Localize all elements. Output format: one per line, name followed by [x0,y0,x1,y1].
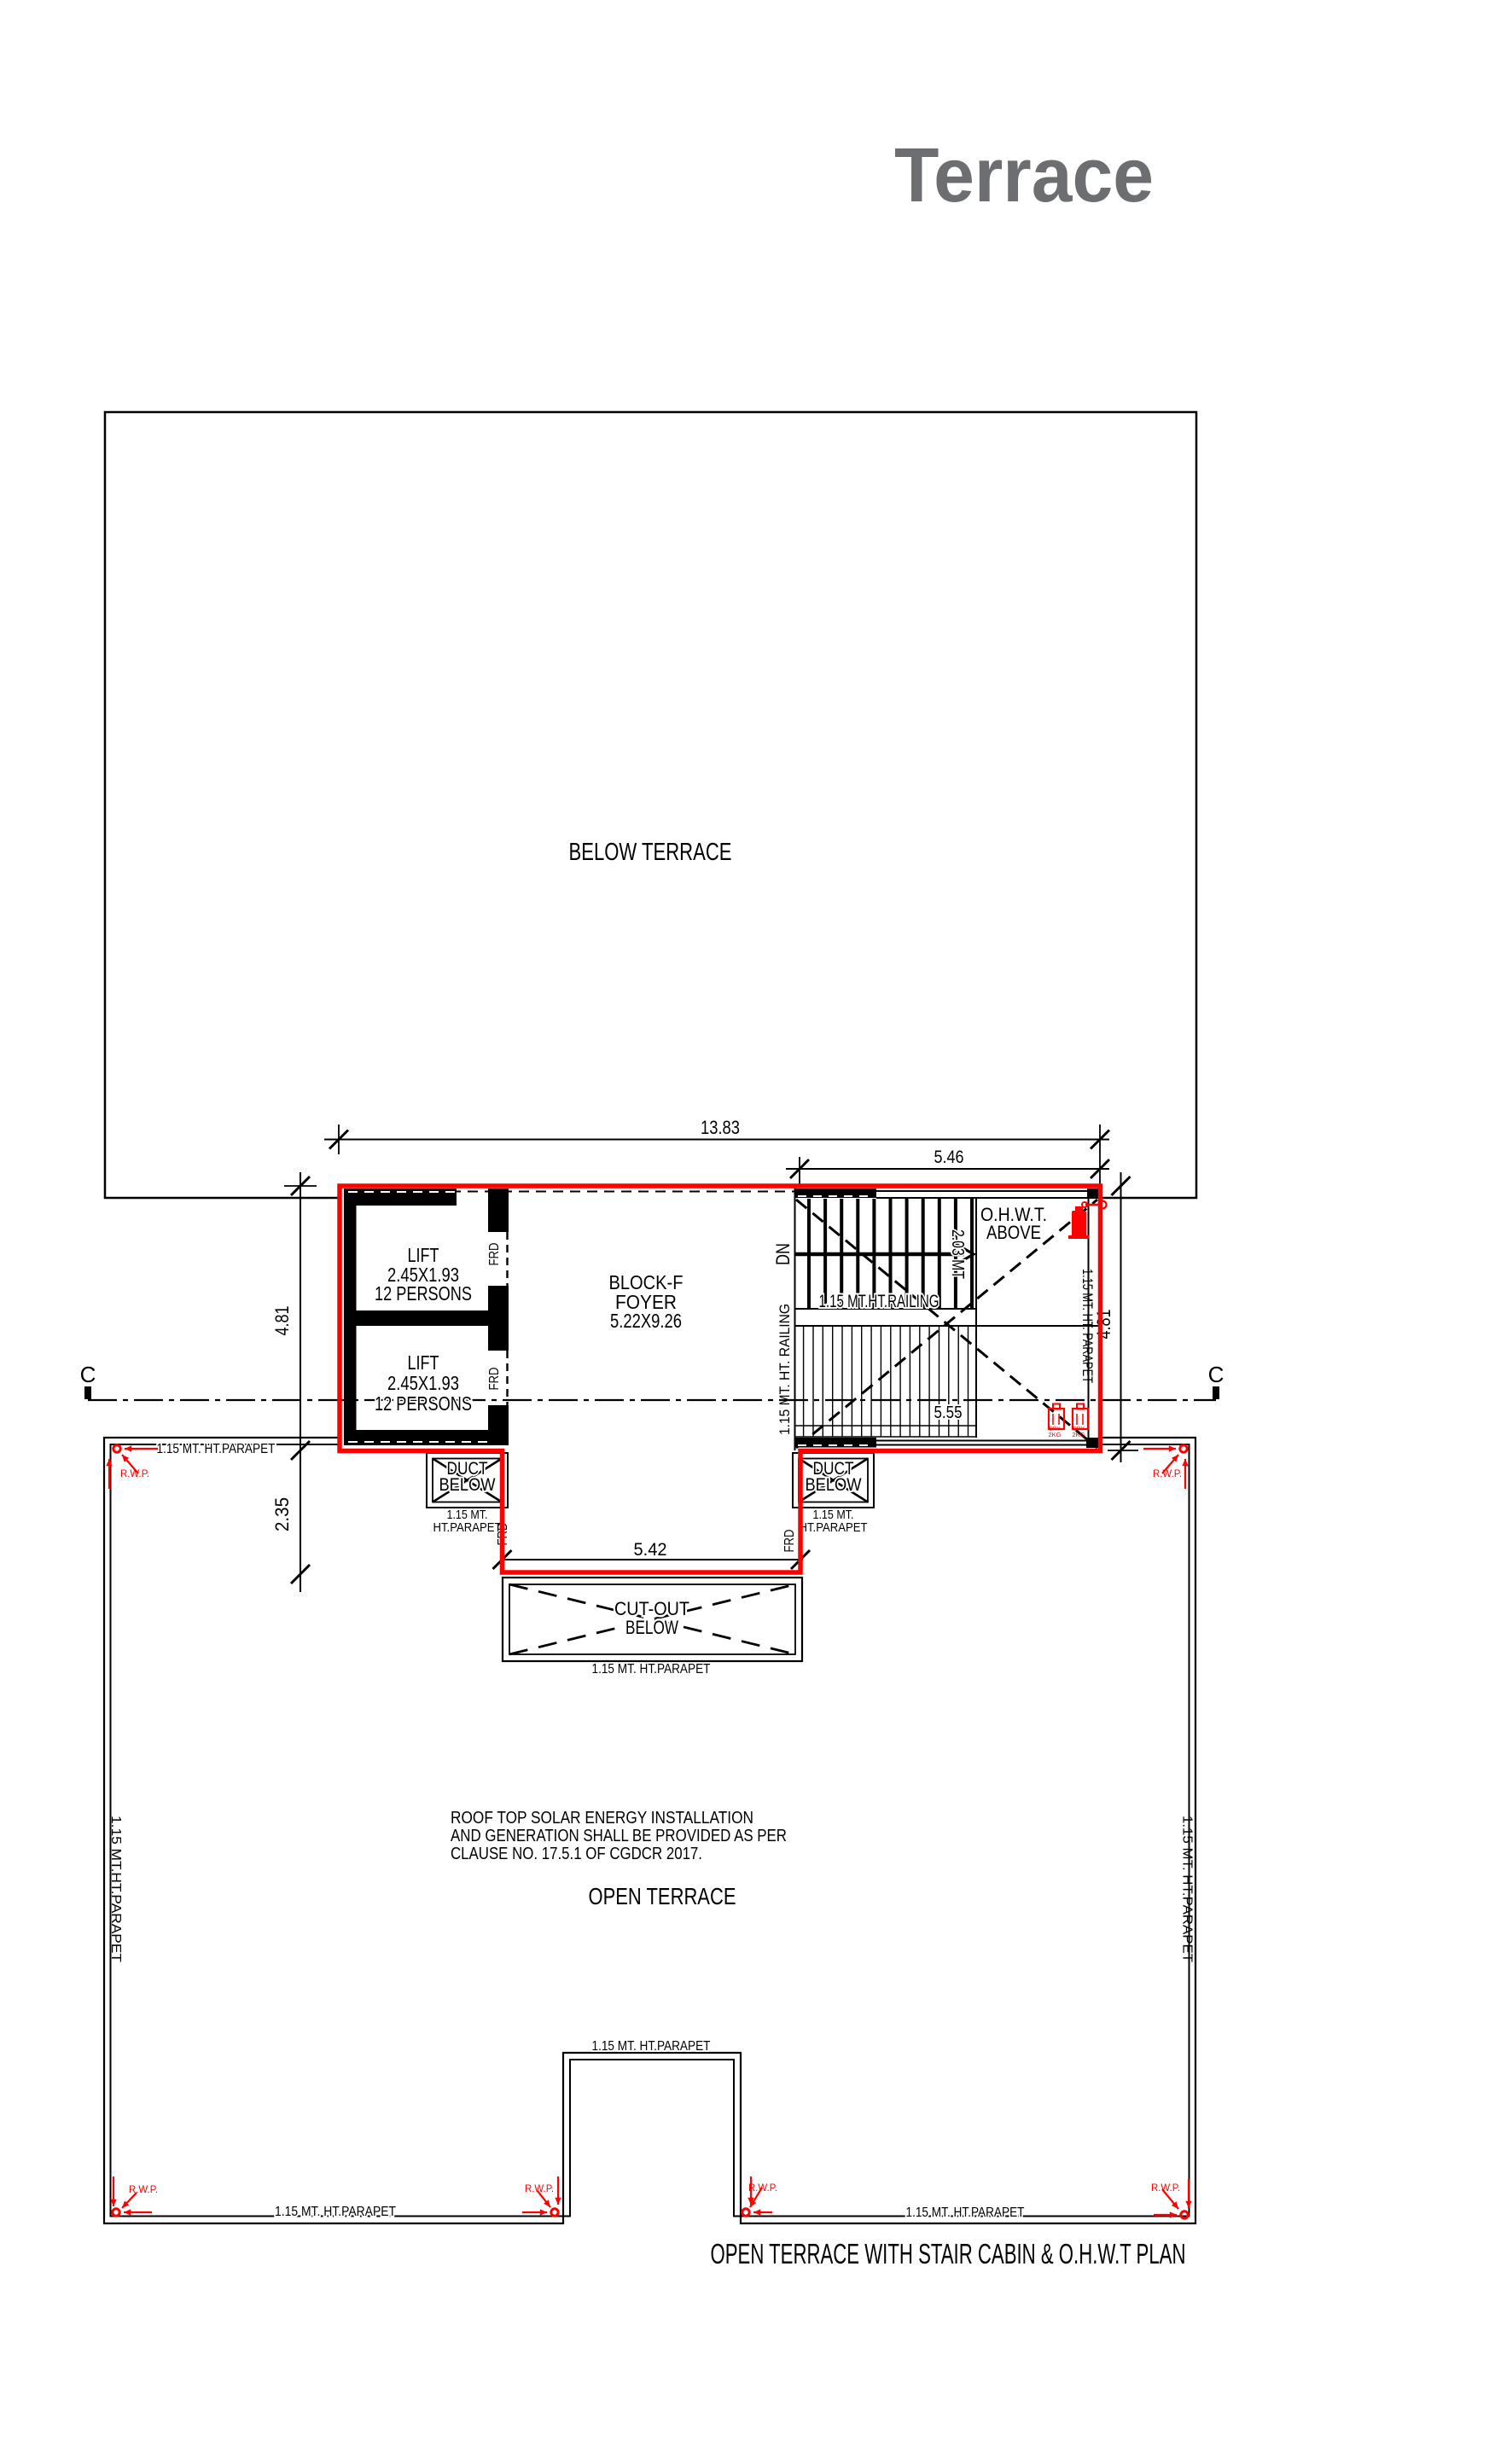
svg-text:1.15 MT. HT.PARAPET: 1.15 MT. HT.PARAPET [592,2039,711,2054]
svg-text:1.15 MT. HT.PARAPET: 1.15 MT. HT.PARAPET [1180,1816,1195,1962]
svg-text:5.22X9.26: 5.22X9.26 [610,1310,682,1332]
svg-text:1.15 MT. HT.PARAPET: 1.15 MT. HT.PARAPET [157,1442,276,1456]
svg-text:AND GENERATION SHALL BE PROVID: AND GENERATION SHALL BE PROVIDED AS PER [451,1827,787,1845]
svg-text:FRD: FRD [782,1530,797,1553]
svg-text:ROOF TOP SOLAR ENERGY INSTALLA: ROOF TOP SOLAR ENERGY INSTALLATION [451,1809,753,1828]
svg-text:DRY: DRY [1073,1427,1085,1432]
svg-text:FRD: FRD [487,1368,502,1391]
svg-text:1.15 MT. HT.PARAPET: 1.15 MT. HT.PARAPET [906,2205,1025,2220]
svg-text:R.W.P.: R.W.P. [748,2182,777,2194]
svg-text:BELOW: BELOW [806,1475,862,1495]
svg-text:LIFT: LIFT [408,1351,439,1374]
svg-text:1.15 MT. HT.PARAPET: 1.15 MT. HT.PARAPET [592,1662,711,1677]
svg-text:4.81: 4.81 [271,1306,293,1336]
svg-text:DRY: DRY [1049,1427,1061,1432]
svg-text:1.15 MT. HT.PARAPET: 1.15 MT. HT.PARAPET [275,2205,396,2219]
svg-text:5.46: 5.46 [934,1148,964,1167]
svg-text:13.83: 13.83 [701,1117,740,1138]
svg-text:1.15 MT. HT. PARAPET: 1.15 MT. HT. PARAPET [1079,1269,1096,1383]
svg-text:OPEN TERRACE WITH STAIR CABIN: OPEN TERRACE WITH STAIR CABIN & O.H.W.T … [711,2238,1186,2269]
svg-text:R.W.P.: R.W.P. [129,2183,158,2195]
svg-text:R.W.P.: R.W.P. [1153,1467,1182,1479]
svg-text:2.03 MT: 2.03 MT [948,1229,967,1279]
svg-text:12 PERSONS: 12 PERSONS [375,1392,472,1415]
svg-text:C: C [1208,1362,1225,1387]
svg-text:R.W.P.: R.W.P. [120,1467,149,1479]
svg-text:1.15 MT.HT.PARAPET: 1.15 MT.HT.PARAPET [108,1816,123,1962]
svg-text:R.W.P.: R.W.P. [525,2182,554,2194]
svg-text:BELOW: BELOW [625,1617,678,1638]
svg-text:HT.PARAPET: HT.PARAPET [433,1520,502,1535]
svg-text:5.42: 5.42 [634,1540,667,1560]
svg-text:2.45X1.93: 2.45X1.93 [387,1372,459,1394]
svg-text:R.W.P.: R.W.P. [1151,2182,1180,2194]
svg-text:HT.PARAPET: HT.PARAPET [800,1520,868,1535]
svg-text:CLAUSE NO. 17.5.1 OF CGDCR 201: CLAUSE NO. 17.5.1 OF CGDCR 2017. [451,1845,702,1863]
svg-text:BELOW: BELOW [439,1475,496,1495]
svg-text:C: C [80,1362,96,1387]
svg-text:12 PERSONS: 12 PERSONS [375,1282,472,1305]
svg-text:5.55: 5.55 [934,1403,963,1422]
svg-text:FRD: FRD [487,1243,502,1266]
svg-text:DN: DN [772,1243,794,1265]
svg-text:BELOW TERRACE: BELOW TERRACE [569,839,732,866]
svg-text:1.15 MT.HT.RAILING: 1.15 MT.HT.RAILING [819,1292,939,1311]
svg-text:OPEN TERRACE: OPEN TERRACE [589,1883,736,1909]
svg-text:2.35: 2.35 [271,1497,293,1531]
svg-text:Terrace: Terrace [894,133,1154,218]
svg-text:ABOVE: ABOVE [986,1222,1041,1243]
svg-text:1.15 MT. HT. RAILING: 1.15 MT. HT. RAILING [777,1304,793,1435]
